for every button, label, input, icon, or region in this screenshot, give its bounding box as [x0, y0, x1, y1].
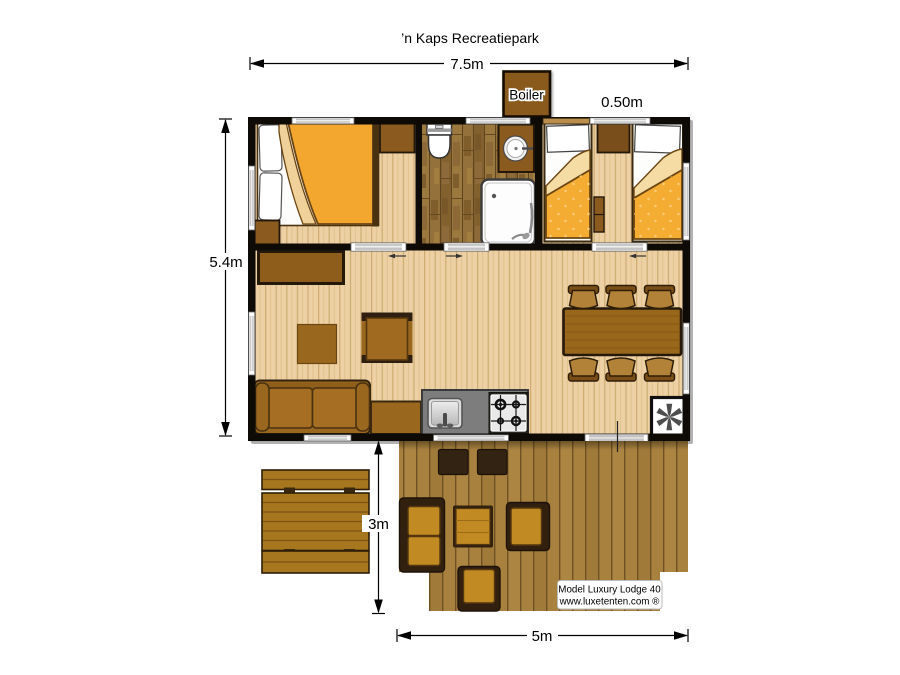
svg-text:Boiler: Boiler — [509, 88, 544, 103]
svg-text:7.5m: 7.5m — [450, 56, 483, 73]
svg-text:www.luxetenten.com ®: www.luxetenten.com ® — [559, 597, 661, 608]
svg-text:3m: 3m — [368, 516, 389, 533]
svg-text:0.50m: 0.50m — [601, 94, 643, 111]
svg-text:5m: 5m — [532, 628, 553, 645]
svg-text:’n Kaps Recreatiepark: ’n Kaps Recreatiepark — [401, 30, 540, 46]
svg-text:5.4m: 5.4m — [209, 254, 242, 271]
svg-text:Model Luxury Lodge 40: Model Luxury Lodge 40 — [558, 585, 661, 596]
